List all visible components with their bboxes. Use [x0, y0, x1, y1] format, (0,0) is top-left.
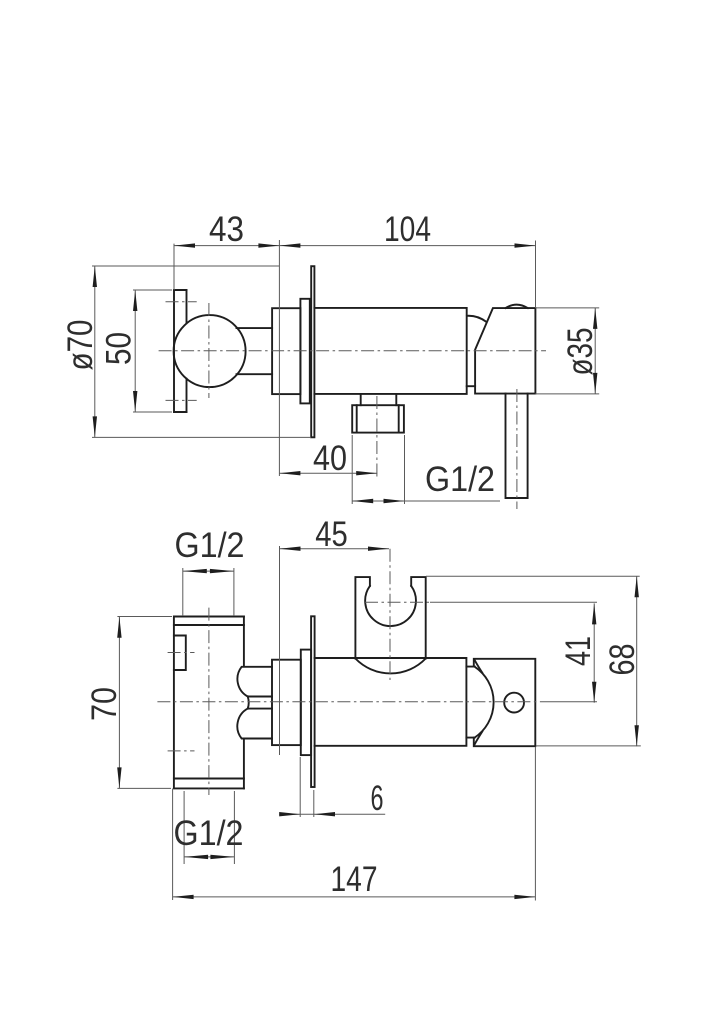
svg-text:G1/2: G1/2	[174, 814, 244, 853]
svg-text:43: 43	[209, 210, 244, 249]
svg-text:G1/2: G1/2	[175, 526, 245, 565]
svg-text:45: 45	[315, 515, 348, 554]
svg-text:ø35: ø35	[561, 328, 600, 376]
svg-text:ø70: ø70	[61, 320, 100, 371]
svg-text:41: 41	[559, 636, 598, 666]
svg-text:104: 104	[384, 210, 431, 249]
svg-text:G1/2: G1/2	[425, 460, 495, 499]
svg-text:6: 6	[371, 779, 384, 818]
svg-text:70: 70	[85, 687, 124, 721]
svg-text:50: 50	[100, 332, 139, 365]
svg-text:147: 147	[331, 860, 378, 899]
svg-text:40: 40	[313, 439, 347, 478]
svg-text:68: 68	[603, 644, 642, 676]
